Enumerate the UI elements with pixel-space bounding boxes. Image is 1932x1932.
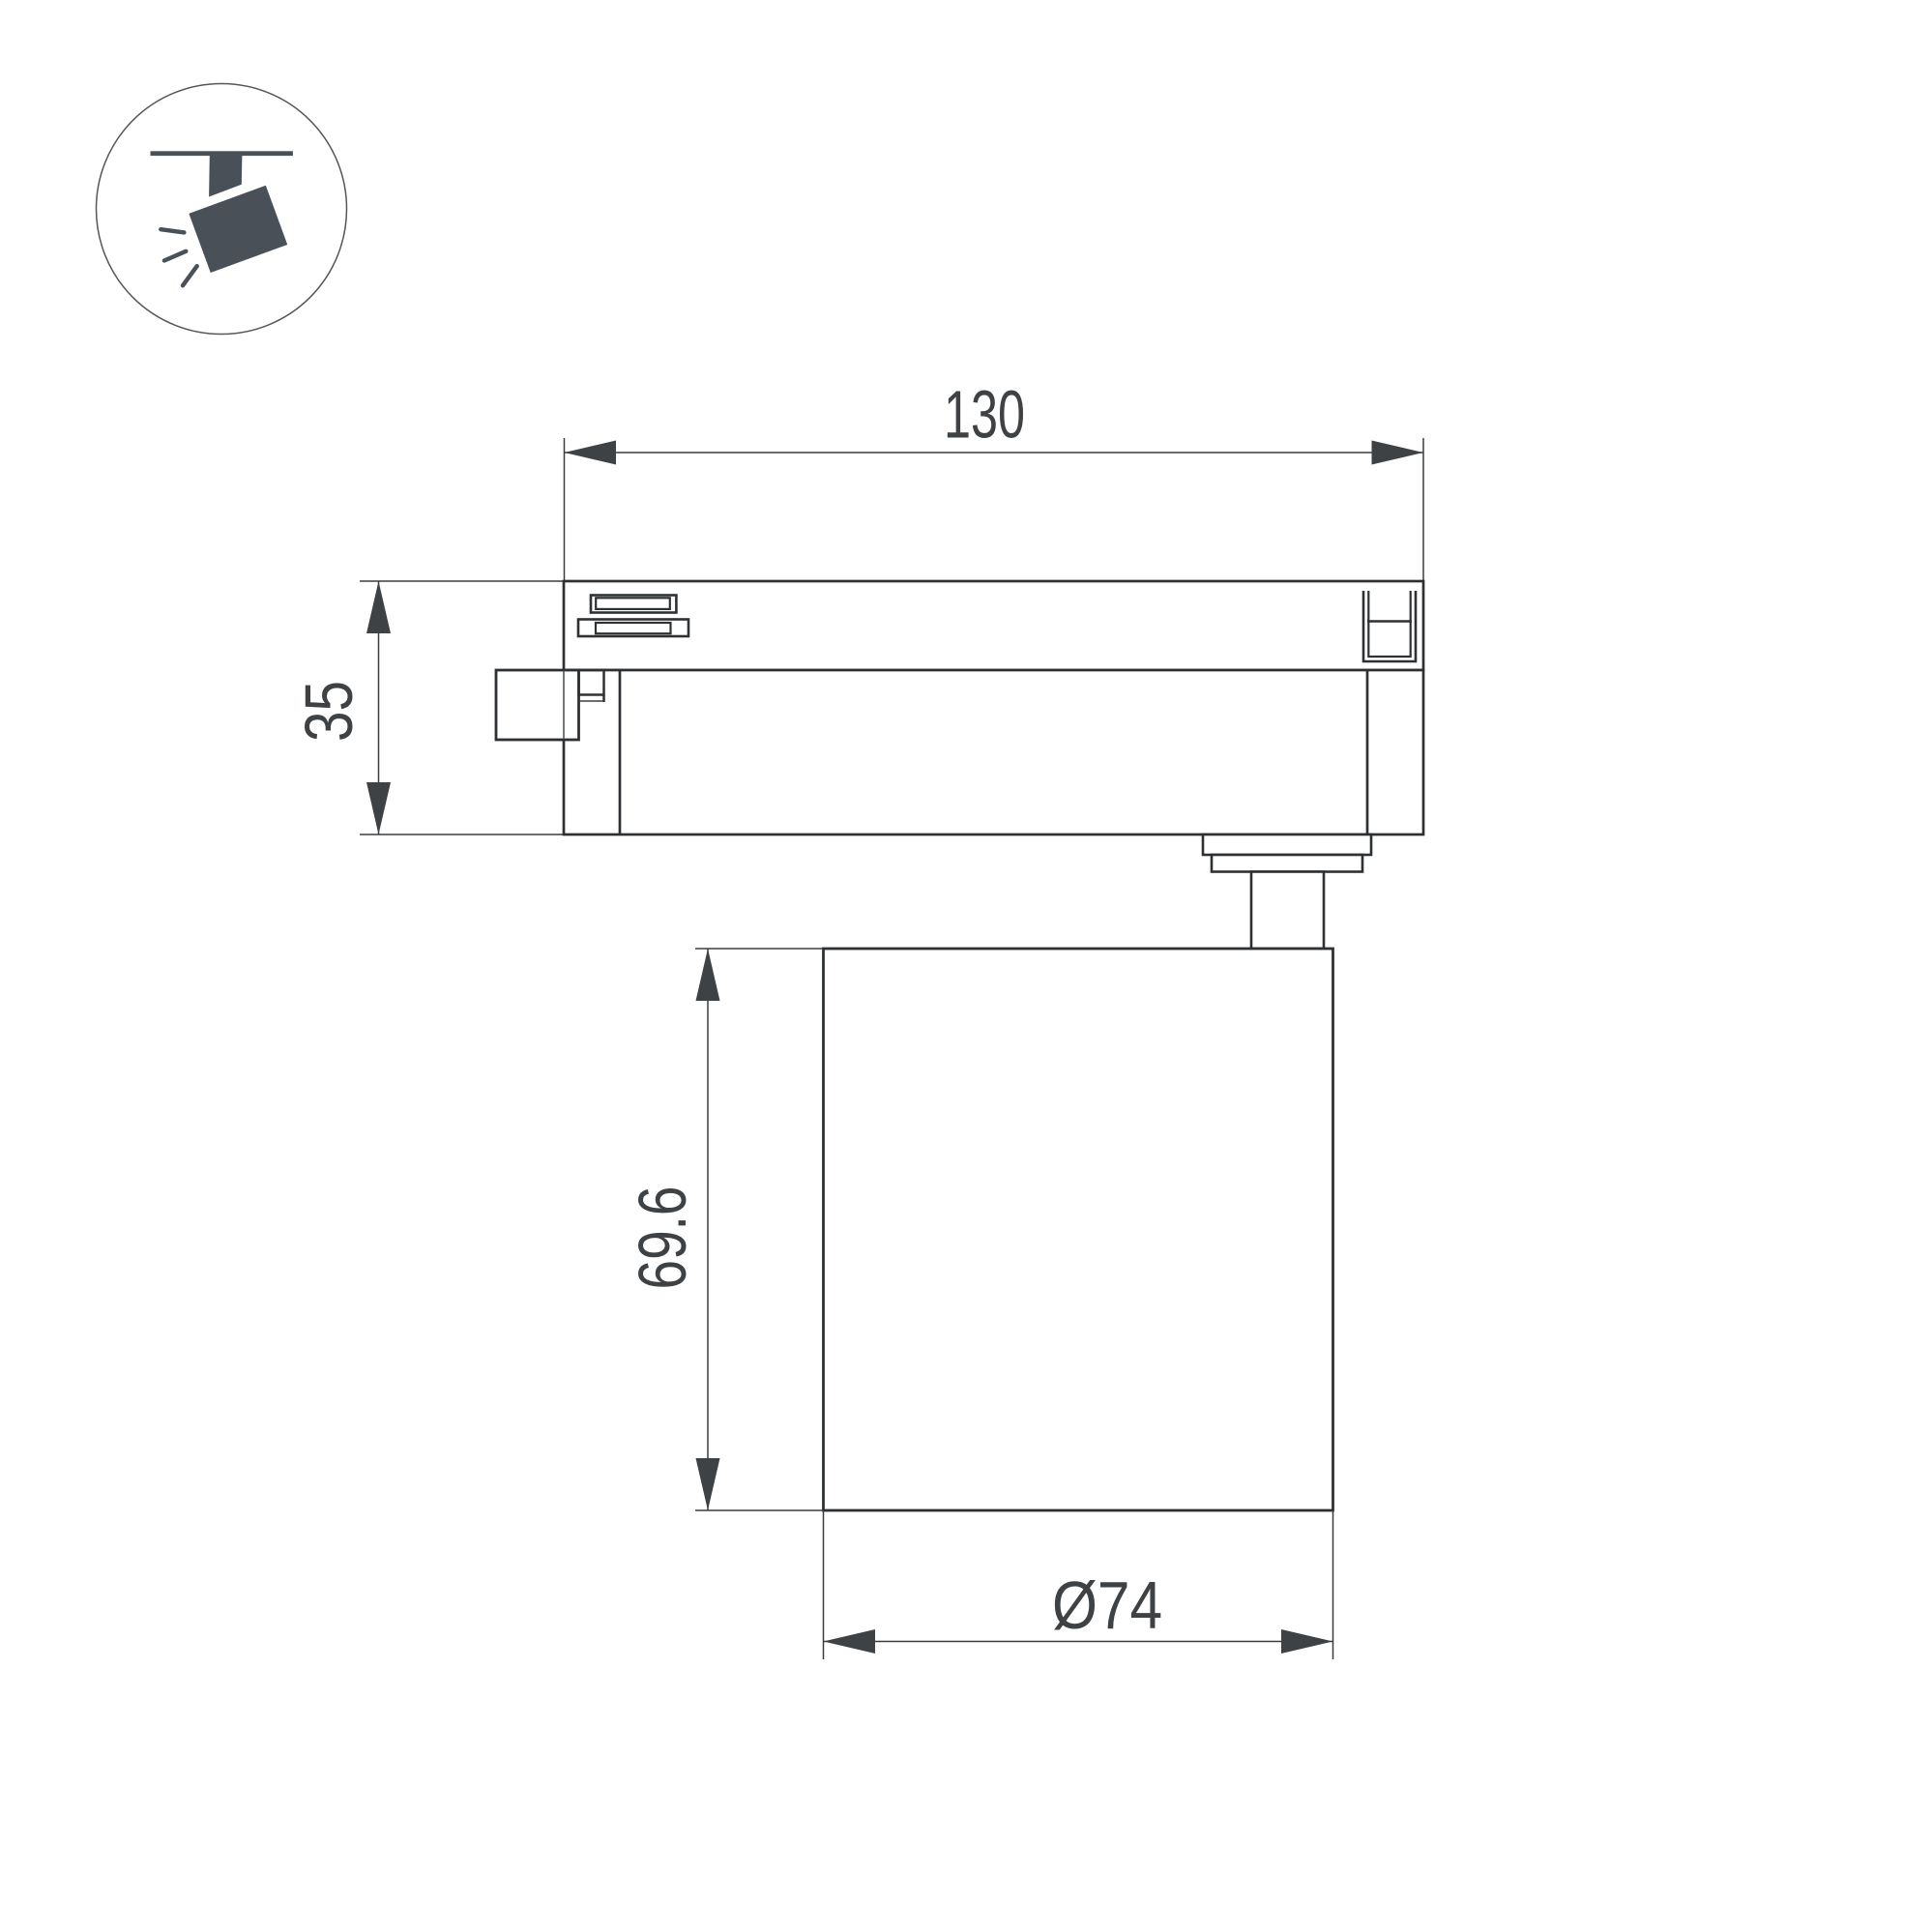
svg-text:130: 130 [944,377,1025,453]
svg-text:35: 35 [291,681,366,742]
svg-text:69.6: 69.6 [625,1186,700,1290]
svg-text:Ø74: Ø74 [1052,1567,1162,1643]
